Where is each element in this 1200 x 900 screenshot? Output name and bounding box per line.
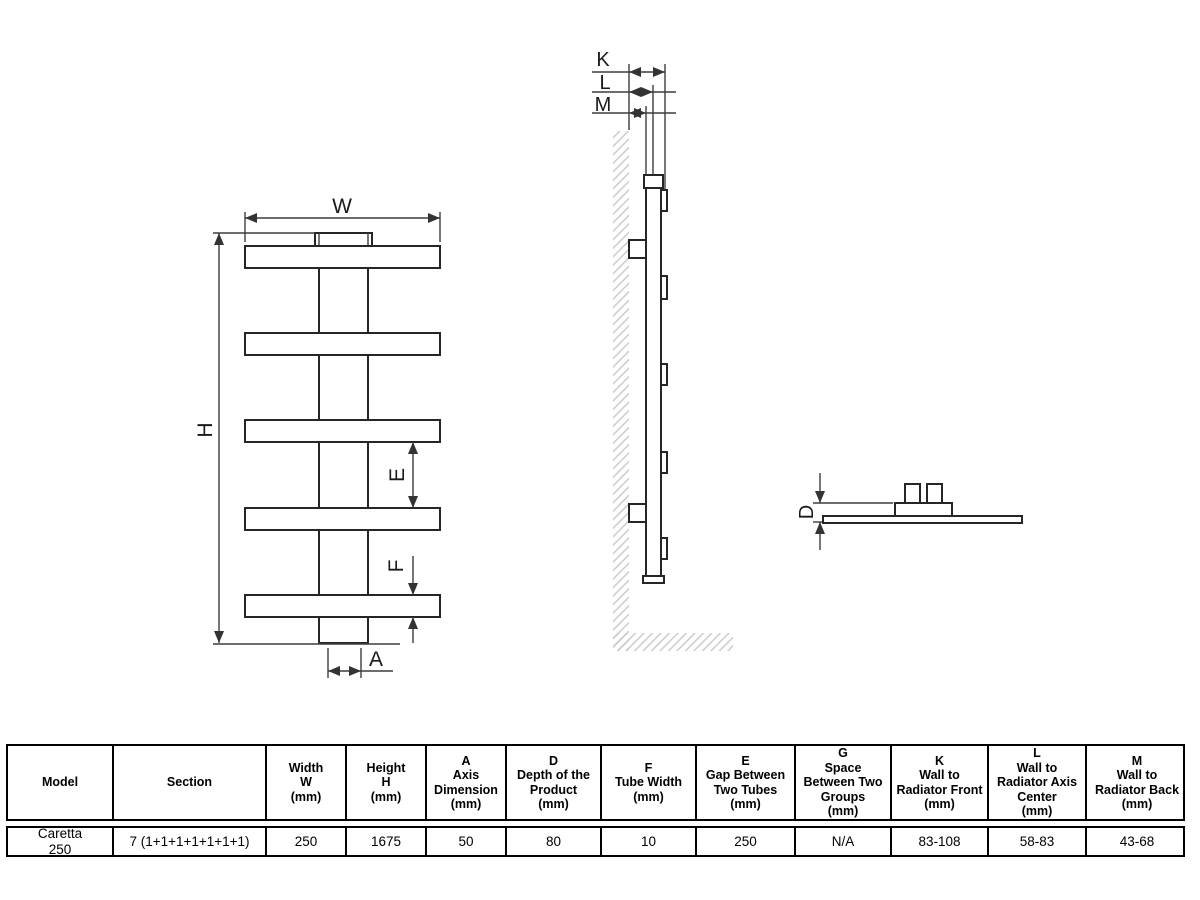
top-view: D [796, 473, 1022, 550]
column-side-top-cap [644, 175, 663, 188]
value-wall-back: 43-68 [1085, 828, 1187, 855]
value-gap: 250 [695, 828, 794, 855]
header-cell-depth: D Depth of the Product (mm) [505, 746, 600, 819]
header-cell-wall-front: K Wall to Radiator Front (mm) [890, 746, 987, 819]
tube-3 [245, 420, 440, 442]
header-cell-tube-width: F Tube Width (mm) [600, 746, 695, 819]
mounting-bracket-top [629, 240, 646, 258]
dim-gap-E: E [386, 442, 413, 508]
header-cell-model: Model [8, 746, 112, 819]
floor-hatch [613, 633, 733, 651]
header-cell-gap: E Gap Between Two Tubes (mm) [695, 746, 794, 819]
dim-axis-A: A [328, 648, 393, 678]
label-H: H [194, 422, 217, 437]
header-cell-height: Height H (mm) [345, 746, 425, 819]
value-width: 250 [265, 828, 345, 855]
mounting-bracket-bottom [629, 504, 646, 522]
label-K: K [596, 49, 610, 71]
dim-depth-D: D [796, 473, 893, 550]
tube-end-5 [661, 538, 667, 559]
label-D: D [796, 505, 818, 519]
tube-1 [245, 246, 440, 268]
front-view: W H E F [194, 195, 440, 678]
label-A: A [369, 648, 383, 671]
tube-4 [245, 508, 440, 530]
tube-end-3 [661, 364, 667, 385]
label-W: W [332, 195, 352, 218]
tube-top-view [823, 516, 1022, 523]
wall-hatch [613, 131, 629, 651]
header-cell-section: Section [112, 746, 265, 819]
label-F: F [385, 560, 408, 573]
header-cell-axis: A Axis Dimension (mm) [425, 746, 505, 819]
pipe-connection-2 [927, 484, 942, 503]
header-cell-width: Width W (mm) [265, 746, 345, 819]
radiator-spec-sheet: W H E F [0, 0, 1200, 900]
label-M: M [595, 94, 612, 116]
dim-L: L [592, 72, 676, 94]
tube-end-4 [661, 452, 667, 473]
tube-end-1 [661, 190, 667, 211]
label-L: L [599, 72, 610, 94]
value-section: 7 (1+1+1+1+1+1+1) [112, 828, 265, 855]
tube-end-2 [661, 276, 667, 299]
value-wall-front: 83-108 [890, 828, 987, 855]
dimensions-table: Model Section Width W (mm) Height H (mm)… [6, 744, 1185, 857]
column-side [646, 188, 661, 576]
table-data-row: Caretta 250 7 (1+1+1+1+1+1+1) 250 1675 5… [6, 826, 1185, 857]
value-model: Caretta 250 [8, 828, 112, 855]
dim-M: M [592, 94, 676, 116]
value-height: 1675 [345, 828, 425, 855]
value-depth: 80 [505, 828, 600, 855]
technical-drawing: W H E F [0, 0, 1200, 740]
header-cell-wall-back: M Wall to Radiator Back (mm) [1085, 746, 1187, 819]
header-cell-group-space: G Space Between Two Groups (mm) [794, 746, 890, 819]
column-top-view [895, 503, 952, 516]
label-E: E [386, 468, 409, 482]
table-header-row: Model Section Width W (mm) Height H (mm)… [6, 744, 1185, 821]
value-tube-width: 10 [600, 828, 695, 855]
value-group-space: N/A [794, 828, 890, 855]
pipe-connection-1 [905, 484, 920, 503]
side-view: K L M [592, 49, 733, 651]
header-cell-wall-axis: L Wall to Radiator Axis Center (mm) [987, 746, 1085, 819]
column-top-cap [315, 233, 372, 246]
column-side-bottom-cap [643, 576, 664, 583]
vertical-column [319, 246, 368, 643]
tube-5 [245, 595, 440, 617]
value-wall-axis: 58-83 [987, 828, 1085, 855]
value-axis: 50 [425, 828, 505, 855]
tube-2 [245, 333, 440, 355]
